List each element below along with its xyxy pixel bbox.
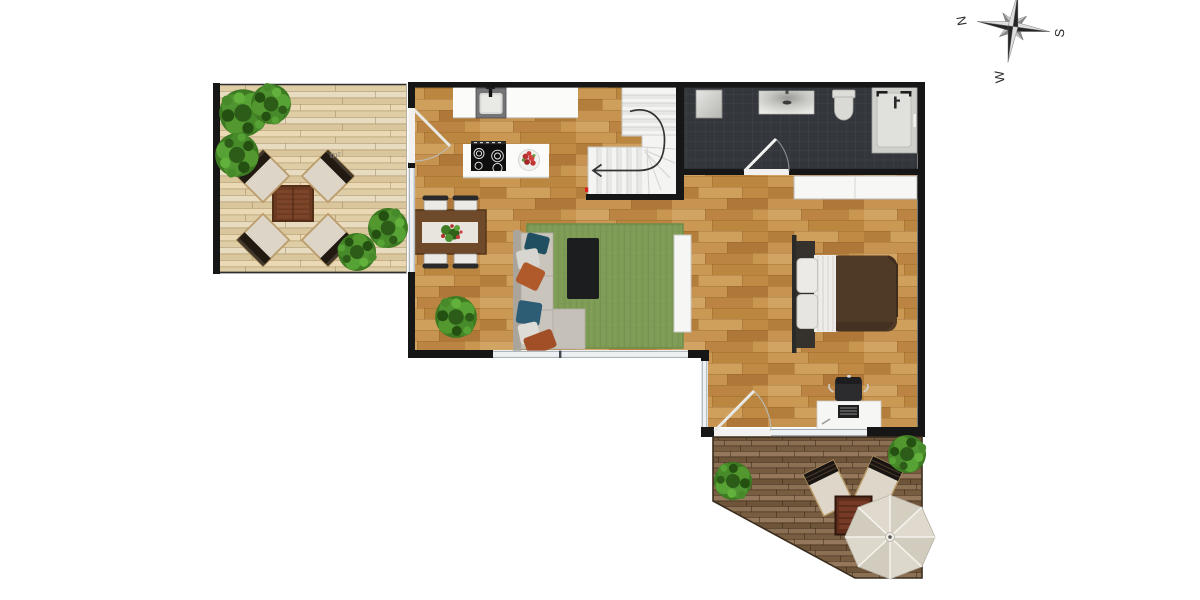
svg-text:S: S	[1052, 28, 1068, 38]
svg-text:W: W	[991, 69, 1007, 83]
svg-text:m²: m²	[330, 150, 341, 160]
